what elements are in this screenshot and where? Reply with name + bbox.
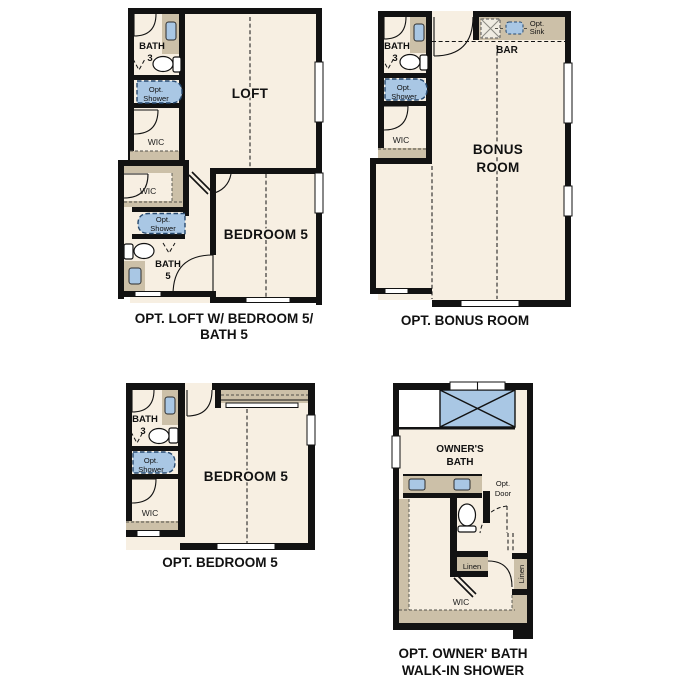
closet-shelf bbox=[130, 151, 179, 160]
closet-shelf bbox=[378, 148, 426, 158]
window bbox=[461, 301, 519, 307]
plan-caption: OPT. LOFT W/ BEDROOM 5/ bbox=[135, 311, 314, 326]
toilet-icon bbox=[400, 55, 420, 70]
window bbox=[315, 62, 323, 122]
plan-caption: OPT. BEDROOM 5 bbox=[162, 555, 278, 570]
sink-icon bbox=[454, 479, 470, 490]
linen-label: Linen bbox=[517, 565, 526, 583]
wic-label: WIC bbox=[393, 135, 410, 145]
opt-shower-label: Shower bbox=[138, 465, 164, 474]
floorplan-opt-loft-bedroom5-bath5: LOFT BEDROOM 5 BATH 3 Opt. Shower bbox=[118, 3, 330, 348]
linen-closet-2: Linen bbox=[514, 559, 527, 589]
toilet-icon bbox=[134, 244, 154, 259]
floorplan-sheet: LOFT BEDROOM 5 BATH 3 Opt. Shower bbox=[0, 0, 687, 687]
bath3-label: BATH bbox=[139, 41, 165, 52]
toilet-tank bbox=[173, 57, 181, 72]
bath3-number: 3 bbox=[140, 426, 145, 437]
bonus-room-label: BONUS bbox=[473, 142, 523, 157]
opt-shower-label: Opt. bbox=[397, 83, 411, 92]
bath3-number: 3 bbox=[392, 53, 397, 64]
wic-label: WIC bbox=[148, 137, 165, 147]
opt-shower-label: Opt. bbox=[144, 456, 158, 465]
sink-icon bbox=[414, 24, 424, 41]
toilet-tank bbox=[169, 428, 178, 443]
owners-bath-label: OWNER'S bbox=[436, 444, 484, 455]
opt-shower-1: Opt. Shower bbox=[137, 81, 182, 103]
toilet-base bbox=[458, 526, 476, 532]
opt-sink-label: Sink bbox=[530, 27, 545, 36]
closet-shelf bbox=[221, 390, 308, 403]
toilet-tank bbox=[420, 55, 428, 70]
opt-shower-label: Shower bbox=[150, 224, 176, 233]
plan-caption: OPT. BONUS ROOM bbox=[401, 313, 529, 328]
opt-shower-label: Opt. bbox=[156, 215, 170, 224]
closet-door bbox=[226, 403, 298, 408]
opt-shower: Opt. Shower bbox=[385, 79, 427, 101]
bar-label: BAR bbox=[496, 45, 518, 56]
bath5-label: BATH bbox=[155, 259, 181, 270]
window bbox=[385, 289, 408, 294]
toilet-icon bbox=[153, 57, 173, 72]
window bbox=[392, 436, 400, 468]
bath3-number: 3 bbox=[147, 53, 152, 64]
sink-icon bbox=[129, 268, 141, 284]
bedroom5-label: BEDROOM 5 bbox=[224, 227, 309, 242]
window bbox=[564, 186, 572, 216]
closet-shelf bbox=[399, 499, 409, 610]
wic-label: WIC bbox=[142, 508, 159, 518]
window bbox=[246, 298, 290, 303]
window bbox=[315, 173, 323, 213]
wic-label: WIC bbox=[140, 186, 157, 196]
toilet-tank bbox=[124, 244, 133, 259]
sink-icon bbox=[165, 397, 175, 414]
opt-shower-label: Opt. bbox=[149, 85, 163, 94]
plan-caption: OPT. OWNER' BATH bbox=[399, 646, 528, 661]
opt-shower-2: Opt. Shower bbox=[138, 214, 185, 234]
plan-caption: BATH 5 bbox=[200, 327, 248, 342]
floorplan-opt-owners-bath: OWNER'S BATH Opt. Door Linen Linen bbox=[390, 378, 540, 687]
floorplan-opt-bonus-room: Opt. Sink BAR BONUS ROOM BATH 3 bbox=[370, 3, 576, 333]
closet-shelf bbox=[124, 166, 183, 173]
open-area bbox=[399, 390, 440, 427]
closet bbox=[221, 390, 308, 408]
floorplan-opt-bedroom5: BEDROOM 5 BATH 3 Opt. Shower WIC OPT. BE… bbox=[118, 380, 318, 580]
closet-shelf bbox=[399, 610, 515, 623]
window bbox=[217, 544, 275, 550]
linen-label: Linen bbox=[463, 562, 481, 571]
toilet-icon bbox=[459, 504, 476, 526]
toilet-room bbox=[458, 504, 476, 532]
loft-label: LOFT bbox=[232, 86, 269, 101]
bonus-room-label: ROOM bbox=[476, 160, 519, 175]
toilet-icon bbox=[149, 429, 169, 444]
linen-closet-1: Linen bbox=[457, 557, 488, 571]
window bbox=[135, 292, 161, 297]
plan-caption: WALK-IN SHOWER bbox=[402, 663, 524, 678]
sink-icon bbox=[166, 22, 176, 40]
opt-shower-label: Shower bbox=[143, 94, 169, 103]
opt-sink-icon bbox=[506, 22, 523, 34]
wic-label: WIC bbox=[453, 597, 470, 607]
closet-shelf bbox=[172, 173, 183, 201]
sink-icon bbox=[409, 479, 425, 490]
window bbox=[564, 63, 572, 123]
window bbox=[307, 415, 315, 445]
owners-bath-label: BATH bbox=[446, 457, 473, 468]
bedroom5-label: BEDROOM 5 bbox=[204, 469, 289, 484]
bath5-number: 5 bbox=[165, 271, 171, 282]
opt-door-label: Opt. bbox=[496, 479, 510, 488]
bath3-label: BATH bbox=[132, 414, 158, 425]
bath3-label: BATH bbox=[384, 41, 410, 52]
opt-shower-label: Shower bbox=[391, 92, 417, 101]
opt-shower: Opt. Shower bbox=[133, 452, 175, 474]
opt-door-label: Door bbox=[495, 489, 512, 498]
closet-shelf bbox=[512, 595, 527, 623]
window bbox=[137, 531, 160, 537]
